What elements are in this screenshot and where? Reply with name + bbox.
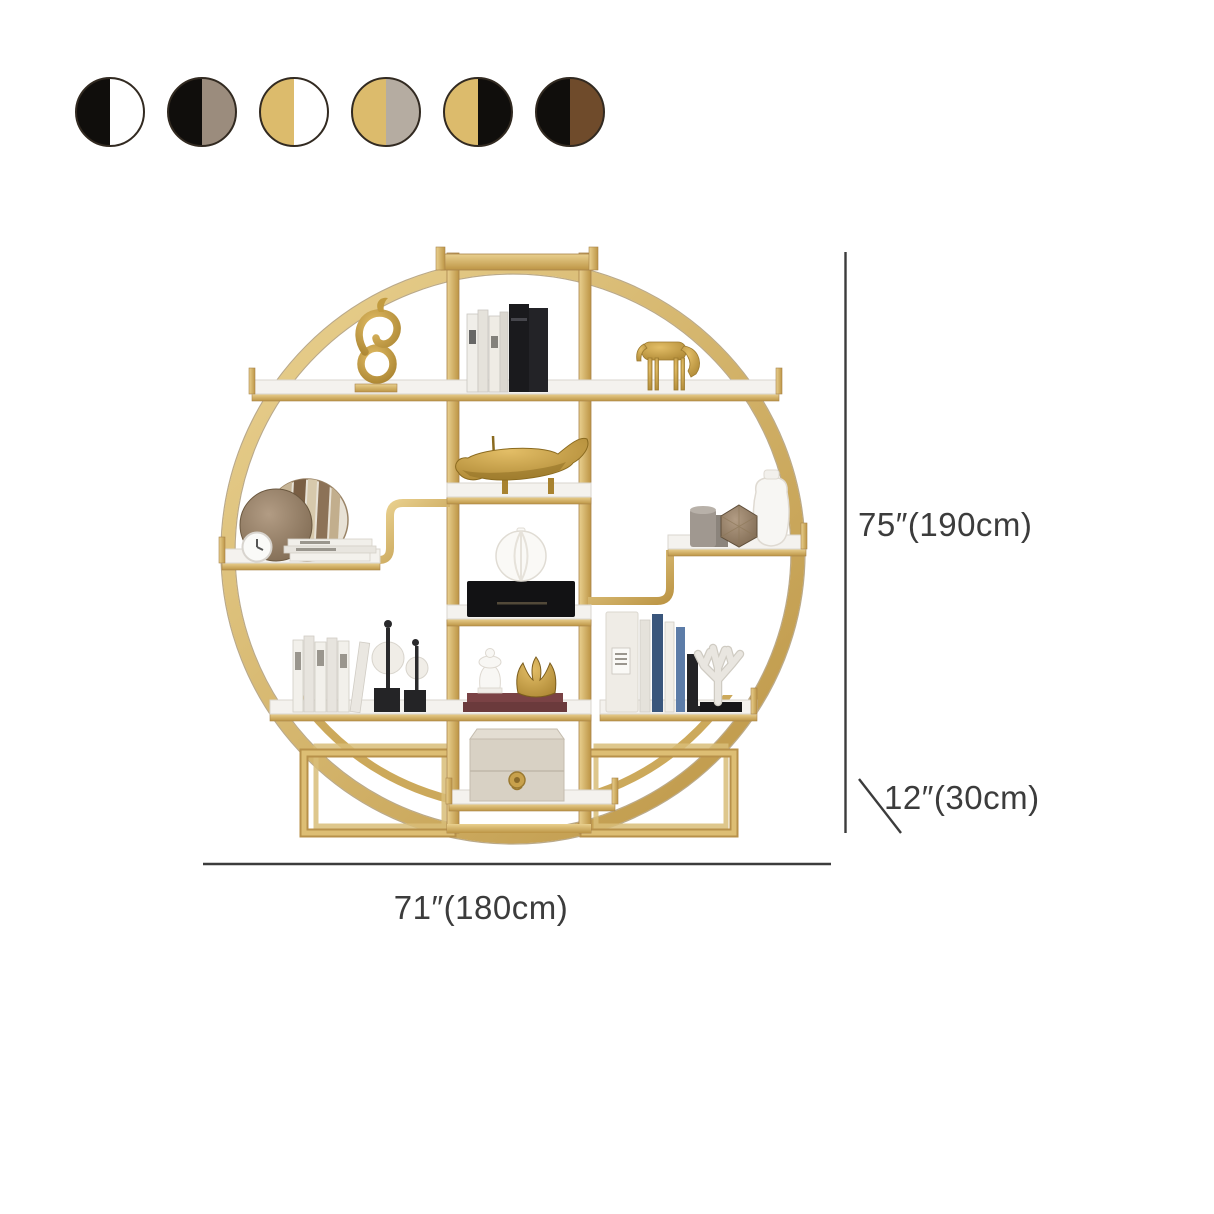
decor-lotus-and-finial (463, 649, 567, 713)
decor-drawer-box (470, 729, 564, 801)
right-post (579, 253, 591, 833)
white-finial (478, 649, 502, 694)
decor-books-right (606, 612, 703, 712)
bookshelf-illustration (219, 247, 807, 844)
product-dimension-diagram: 75″(190cm) 12″(30cm) 71″(180cm) (0, 0, 1214, 1214)
width-dimension-label: 71″(180cm) (394, 889, 568, 926)
white-vase (754, 478, 790, 546)
right-step-curve (588, 550, 670, 601)
decor-stacked-books (284, 539, 376, 561)
product-image: 75″(190cm) 12″(30cm) 71″(180cm) (0, 0, 1214, 1214)
top-bar (436, 247, 598, 270)
floor-crossbar (447, 824, 591, 833)
gold-lotus (517, 657, 556, 697)
left-step-curve (379, 503, 450, 560)
height-dimension-label: 75″(190cm) (858, 506, 1032, 543)
shelf-center-upper (447, 483, 591, 504)
decor-books-top (467, 304, 548, 392)
decor-coral (698, 648, 742, 712)
decor-sphere-on-box (467, 528, 575, 617)
decor-candle-stands (372, 620, 428, 712)
decor-books-left (293, 636, 370, 713)
left-post (447, 253, 459, 833)
decor-clock (243, 533, 272, 562)
depth-dimension-label: 12″(30cm) (884, 779, 1040, 816)
decor-vases-right (690, 470, 789, 547)
left-foot-back (316, 746, 444, 826)
